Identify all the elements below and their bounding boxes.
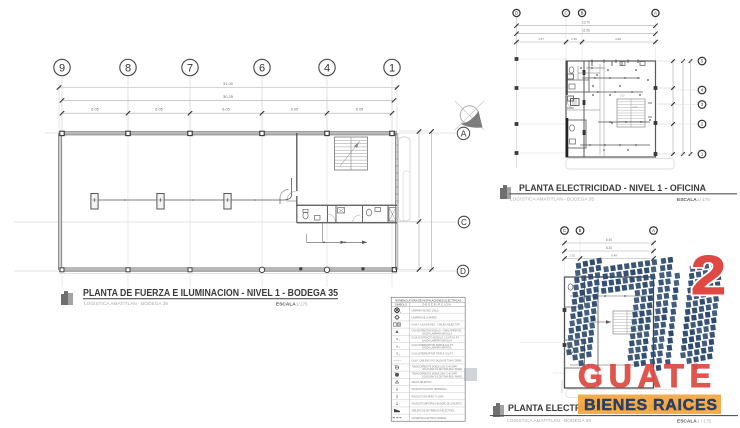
svg-text:ACOMETIDA ELECTRICA GENERAL: ACOMETIDA ELECTRICA GENERAL — [412, 417, 448, 420]
svg-text:SALIDA LAMPARA SENCILLA: SALIDA LAMPARA SENCILLA — [422, 332, 452, 335]
svg-text:SALIDA TELEFONO: SALIDA TELEFONO — [412, 381, 432, 384]
svg-text:B: B — [579, 228, 582, 233]
svg-text:CAJA INTERRUPTOR TRIPLE S.N.P.: CAJA INTERRUPTOR TRIPLE S.N.P.T. — [412, 352, 454, 355]
svg-text:4: 4 — [324, 62, 330, 74]
svg-text:11.56: 11.56 — [582, 29, 590, 33]
svg-text:1: 1 — [389, 62, 395, 74]
svg-text:TOMACORRIENTE DOBLE 240V. 0.40: TOMACORRIENTE DOBLE 240V. 0.40 SNPT — [412, 373, 459, 376]
svg-text:6.48: 6.48 — [611, 254, 617, 258]
svg-text:3: 3 — [399, 354, 400, 356]
svg-text:4.67: 4.67 — [538, 37, 544, 41]
svg-text:LAMPARA DE LA PARED: LAMPARA DE LA PARED — [412, 317, 437, 320]
svg-text:A: A — [654, 11, 657, 16]
svg-text:DESCRIPCION: DESCRIPCION — [422, 303, 451, 307]
svg-text:31.00: 31.00 — [223, 81, 234, 86]
svg-text:6.05: 6.05 — [356, 108, 363, 112]
svg-text:c: c — [400, 312, 401, 314]
svg-text:CAJA Y CAJA DE REG. Y SALIDA R: CAJA Y CAJA DE REG. Y SALIDA REJECTOR — [412, 324, 460, 327]
svg-text:7: 7 — [187, 62, 193, 74]
svg-text:13.70: 13.70 — [582, 21, 590, 25]
svg-text:LOGISTICA AMATITLAN - BODEGA 3: LOGISTICA AMATITLAN - BODEGA 35 — [84, 301, 168, 306]
svg-text:TABLERO DE DISTRIBUCION ELECTR: TABLERO DE DISTRIBUCION ELECTRICA — [412, 410, 455, 413]
svg-text:COLOCADA S.N.DE TOMA REG. PARE: COLOCADA S.N.DE TOMA REG. PARED — [422, 375, 462, 378]
svg-text:C: C — [564, 11, 567, 16]
svg-text:6: 6 — [259, 62, 265, 74]
svg-text:B: B — [581, 11, 584, 16]
svg-text:C: C — [461, 218, 467, 227]
svg-text:PLANTA DE FUERZA E ILUMINACION: PLANTA DE FUERZA E ILUMINACION - NIVEL 1… — [83, 288, 338, 299]
svg-text:30.25: 30.25 — [223, 94, 234, 99]
svg-text:SALIDA LAMPARA SENCILLA: SALIDA LAMPARA SENCILLA — [422, 340, 452, 343]
svg-text:6.05: 6.05 — [91, 108, 98, 112]
svg-text:CAJA Y CABLEADO P/O SALIDA DE: CAJA Y CABLEADO P/O SALIDA DE TOMA CORRI… — [412, 360, 462, 363]
svg-text:1/ 175: 1/ 175 — [697, 197, 710, 202]
svg-text:2: 2 — [691, 244, 726, 306]
svg-text:6.05: 6.05 — [155, 108, 162, 112]
svg-text:ESCALA: ESCALA — [677, 418, 697, 424]
svg-text:D: D — [460, 267, 466, 276]
svg-text:CAJA DISTRIBUTION MODULO + TOM: CAJA DISTRIBUTION MODULO + TOMACORRIENTE… — [412, 330, 462, 333]
svg-text:4.68: 4.68 — [615, 37, 621, 41]
svg-text:C: C — [563, 228, 566, 233]
svg-text:NOMENCLATURA DE INSTALACIONES: NOMENCLATURA DE INSTALACIONES ELECTRICAS — [395, 298, 461, 302]
svg-text:POLIDUCTO EN MURO Y LOSAS: POLIDUCTO EN MURO Y LOSAS — [412, 395, 444, 398]
svg-text:COLOCADA S.N.DE TOMA REG. PARE: COLOCADA S.N.DE TOMA REG. PARED — [422, 368, 462, 371]
svg-text:D: D — [515, 11, 518, 16]
svg-text:POLIDUCTO EMPOTRADO EN MURO DE: POLIDUCTO EMPOTRADO EN MURO DE CONCRETO — [412, 403, 462, 406]
svg-text:ESCALA: ESCALA — [276, 302, 296, 308]
svg-text:ESCALA: ESCALA — [677, 197, 697, 203]
svg-text:BIENES RAICES: BIENES RAICES — [584, 397, 717, 414]
svg-text:PLANTA ELECTRICIDAD - NIVEL 1: PLANTA ELECTRICIDAD - NIVEL 1 - OFICINA — [519, 183, 706, 194]
svg-text:9: 9 — [59, 62, 65, 74]
svg-text:8.30: 8.30 — [606, 246, 612, 250]
svg-text:8: 8 — [125, 62, 131, 74]
svg-text:CAJA INTERRUPTOR SIMPLE S.N.P.: CAJA INTERRUPTOR SIMPLE S.N.P.T. — [412, 344, 454, 347]
svg-text:POLIDUCTO EN PISO TERMINADO: POLIDUCTO EN PISO TERMINADO — [412, 388, 447, 391]
svg-text:1.36: 1.36 — [571, 37, 577, 41]
svg-text:8.40: 8.40 — [606, 238, 612, 242]
svg-text:A: A — [461, 128, 467, 138]
svg-text:LAMPARA INCAND. CIELO: LAMPARA INCAND. CIELO — [412, 309, 439, 312]
svg-text:1 / 175: 1 / 175 — [697, 418, 711, 423]
svg-text:LOGISTICA AMATITLAN - BODEGA 3: LOGISTICA AMATITLAN - BODEGA 35 — [510, 197, 594, 202]
svg-text:1.35: 1.35 — [569, 254, 575, 258]
svg-text:1: 1 — [399, 340, 400, 342]
svg-text:GUATE: GUATE — [578, 358, 711, 394]
svg-text:A: A — [652, 228, 655, 233]
svg-text:6.05: 6.05 — [291, 108, 298, 112]
svg-text:2: 2 — [399, 347, 400, 349]
svg-text:SIMBOLO: SIMBOLO — [395, 303, 407, 307]
svg-text:SALIDA LAMPARA VERTICAL: SALIDA LAMPARA VERTICAL — [422, 347, 453, 350]
svg-text:LOGISTICA AMATITLAN - BODEGA 3: LOGISTICA AMATITLAN - BODEGA 35 — [507, 418, 591, 423]
svg-text:6.05: 6.05 — [222, 108, 229, 112]
svg-text:TOMACORRIENTE DOBLE 110V. 0.40: TOMACORRIENTE DOBLE 110V. 0.40 SNPT — [412, 365, 459, 368]
svg-text:1.00: 1.00 — [620, 95, 625, 98]
svg-text:CAJA CONTRACTO MODULO 1.0 MT.S: CAJA CONTRACTO MODULO 1.0 MT.S.N.P.T. — [412, 337, 460, 340]
svg-text:1/175: 1/175 — [296, 302, 308, 307]
